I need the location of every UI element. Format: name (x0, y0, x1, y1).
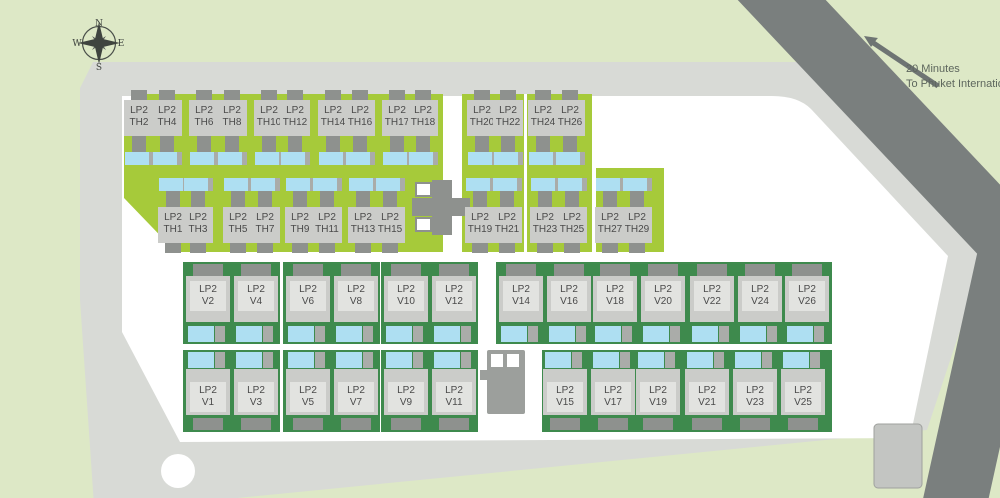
villa-v8[interactable]: LP2V8 (334, 264, 378, 344)
unit-project-prefix: LP2 (190, 284, 226, 296)
roof (415, 90, 431, 100)
parking-pad (874, 424, 922, 488)
townhouse-th6[interactable]: LP2TH6 (189, 90, 219, 168)
roof (341, 418, 371, 430)
pool-deck (461, 352, 471, 368)
unit-label-plate: LP2TH18 (408, 100, 438, 136)
unit-label-plate: LP2V10 (388, 281, 424, 311)
pool-icon (595, 326, 621, 342)
villa-v17[interactable]: LP2V17 (591, 352, 635, 432)
unit-number: V14 (503, 296, 539, 308)
unit-project-prefix: LP2 (345, 105, 375, 117)
townhouse-th27[interactable]: LP2TH27 (595, 178, 625, 256)
pool-icon (188, 326, 214, 342)
roof (600, 264, 630, 276)
unit-number: TH8 (217, 117, 247, 129)
roof (293, 418, 323, 430)
townhouse-th22[interactable]: LP2TH22 (493, 90, 523, 168)
villa-v26[interactable]: LP2V26 (785, 264, 829, 344)
unit-number: TH3 (183, 224, 213, 236)
unit-label-plate: LP2TH24 (528, 100, 558, 136)
unit-label-plate: LP2V1 (190, 382, 226, 412)
pool-deck (810, 352, 820, 368)
garage (262, 136, 276, 152)
unit-number: TH24 (528, 117, 558, 129)
pool-deck (215, 352, 225, 368)
villa-v23[interactable]: LP2V23 (733, 352, 777, 432)
roof (391, 264, 421, 276)
pool-icon (545, 352, 571, 368)
roof (352, 90, 368, 100)
roof (261, 90, 277, 100)
villa-v14[interactable]: LP2V14 (499, 264, 543, 344)
unit-project-prefix: LP2 (280, 105, 310, 117)
unit-label-plate: LP2V8 (338, 281, 374, 311)
roof (190, 243, 206, 253)
garage (390, 136, 404, 152)
roof (389, 90, 405, 100)
pool-deck (582, 178, 587, 191)
unit-project-prefix: LP2 (597, 284, 633, 296)
villa-v7[interactable]: LP2V7 (334, 352, 378, 432)
unit-project-prefix: LP2 (503, 284, 539, 296)
villa-v24[interactable]: LP2V24 (738, 264, 782, 344)
unit-label-plate: LP2TH5 (223, 207, 253, 243)
garage (293, 191, 307, 207)
unit-project-prefix: LP2 (622, 212, 652, 224)
unit-number: TH16 (345, 117, 375, 129)
garage (603, 191, 617, 207)
pool-deck (622, 326, 632, 342)
villa-v21[interactable]: LP2V21 (685, 352, 729, 432)
unit-number: V25 (785, 397, 821, 409)
townhouse-th13[interactable]: LP2TH13 (348, 178, 378, 256)
roof (165, 243, 181, 253)
roof (391, 418, 421, 430)
villa-v16[interactable]: LP2V16 (547, 264, 591, 344)
pool-icon (558, 178, 582, 191)
townhouse-th25[interactable]: LP2TH25 (557, 178, 587, 256)
unit-number: V2 (190, 296, 226, 308)
unit-number: V24 (742, 296, 778, 308)
unit-label-plate: LP2V16 (551, 281, 587, 311)
unit-project-prefix: LP2 (530, 212, 560, 224)
roof (439, 264, 469, 276)
roof (499, 243, 515, 253)
pool-deck (263, 352, 273, 368)
unit-project-prefix: LP2 (694, 284, 730, 296)
unit-label-plate: LP2V19 (640, 382, 676, 412)
pool-icon (251, 178, 275, 191)
compass-west-label: W (72, 39, 82, 49)
unit-label-plate: LP2V21 (689, 382, 725, 412)
travel-note-line2: To Phuket International (906, 77, 1000, 92)
garage (563, 136, 577, 152)
pool-icon (623, 178, 647, 191)
pool-deck (620, 352, 630, 368)
unit-number: V18 (597, 296, 633, 308)
townhouse-th15[interactable]: LP2TH15 (375, 178, 405, 256)
unit-number: V6 (290, 296, 326, 308)
roof (287, 90, 303, 100)
villa-v1[interactable]: LP2V1 (186, 352, 230, 432)
unit-project-prefix: LP2 (338, 385, 374, 397)
pool-icon (740, 326, 766, 342)
townhouse-th18[interactable]: LP2TH18 (408, 90, 438, 168)
airport-travel-note: 20 Minutes To Phuket International (906, 62, 1000, 92)
unit-number: TH13 (348, 224, 378, 236)
unit-project-prefix: LP2 (189, 105, 219, 117)
unit-project-prefix: LP2 (555, 105, 585, 117)
unit-project-prefix: LP2 (250, 212, 280, 224)
pool-deck (400, 178, 405, 191)
townhouse-th11[interactable]: LP2TH11 (312, 178, 342, 256)
unit-label-plate: LP2TH23 (530, 207, 560, 243)
villa-v12[interactable]: LP2V12 (432, 264, 476, 344)
pool-icon (638, 352, 664, 368)
roof (506, 264, 536, 276)
unit-label-plate: LP2V9 (388, 382, 424, 412)
unit-project-prefix: LP2 (595, 212, 625, 224)
villa-v3[interactable]: LP2V3 (234, 352, 278, 432)
garage (536, 136, 550, 152)
unit-number: V5 (290, 397, 326, 409)
pool-icon (224, 178, 248, 191)
garage (473, 191, 487, 207)
townhouse-th9[interactable]: LP2TH9 (285, 178, 315, 256)
garage (630, 191, 644, 207)
roof (224, 90, 240, 100)
roof (325, 90, 341, 100)
unit-project-prefix: LP2 (348, 212, 378, 224)
unit-number: V3 (238, 397, 274, 409)
pool-deck (413, 352, 423, 368)
unit-label-plate: LP2V15 (547, 382, 583, 412)
unit-number: V4 (238, 296, 274, 308)
unit-project-prefix: LP2 (290, 284, 326, 296)
unit-label-plate: LP2V12 (436, 281, 472, 311)
roof (602, 243, 618, 253)
villa-v2[interactable]: LP2V2 (186, 264, 230, 344)
roof (535, 90, 551, 100)
pool-icon (529, 152, 553, 165)
unit-label-plate: LP2V22 (694, 281, 730, 311)
pool-icon (383, 152, 407, 165)
pool-deck (413, 326, 423, 342)
unit-project-prefix: LP2 (640, 385, 676, 397)
pool-deck (647, 178, 652, 191)
townhouse-th4[interactable]: LP2TH4 (152, 90, 182, 168)
villa-v25[interactable]: LP2V25 (781, 352, 825, 432)
pool-icon (787, 326, 813, 342)
lane-divider (524, 94, 527, 252)
unit-number: V10 (388, 296, 424, 308)
villa-v4[interactable]: LP2V4 (234, 264, 278, 344)
unit-number: V19 (640, 397, 676, 409)
unit-label-plate: LP2TH8 (217, 100, 247, 136)
townhouse-th23[interactable]: LP2TH23 (530, 178, 560, 256)
pool-icon (434, 326, 460, 342)
unit-number: TH12 (280, 117, 310, 129)
townhouse-th12[interactable]: LP2TH12 (280, 90, 310, 168)
unit-project-prefix: LP2 (290, 385, 326, 397)
garage (225, 136, 239, 152)
unit-label-plate: LP2V5 (290, 382, 326, 412)
garage (258, 191, 272, 207)
pool-icon (313, 178, 337, 191)
pool-icon (188, 352, 214, 368)
unit-number: TH15 (375, 224, 405, 236)
unit-label-plate: LP2TH7 (250, 207, 280, 243)
unit-project-prefix: LP2 (436, 385, 472, 397)
pool-icon (159, 178, 183, 191)
unit-project-prefix: LP2 (789, 284, 825, 296)
villa-v5[interactable]: LP2V5 (286, 352, 330, 432)
pool-deck (263, 326, 273, 342)
unit-label-plate: LP2V6 (290, 281, 326, 311)
garage (166, 191, 180, 207)
unit-project-prefix: LP2 (436, 284, 472, 296)
unit-number: TH21 (492, 224, 522, 236)
pool-deck (242, 152, 247, 165)
unit-project-prefix: LP2 (465, 212, 495, 224)
pool-icon (236, 326, 262, 342)
unit-label-plate: LP2TH15 (375, 207, 405, 243)
villa-v19[interactable]: LP2V19 (636, 352, 680, 432)
roof (472, 243, 488, 253)
pool-icon (288, 352, 314, 368)
unit-number: TH14 (318, 117, 348, 129)
pool-icon (643, 326, 669, 342)
garage (231, 191, 245, 207)
unit-project-prefix: LP2 (408, 105, 438, 117)
pool-icon (386, 326, 412, 342)
garage (500, 191, 514, 207)
pool-deck (337, 178, 342, 191)
unit-project-prefix: LP2 (124, 105, 154, 117)
townhouse-th21[interactable]: LP2TH21 (492, 178, 522, 256)
pool-icon (125, 152, 149, 165)
unit-label-plate: LP2V26 (789, 281, 825, 311)
unit-number: V11 (436, 397, 472, 409)
unit-label-plate: LP2TH29 (622, 207, 652, 243)
unit-number: TH4 (152, 117, 182, 129)
pool-deck (762, 352, 772, 368)
unit-project-prefix: LP2 (338, 284, 374, 296)
roof (740, 418, 770, 430)
unit-label-plate: LP2V18 (597, 281, 633, 311)
roof (564, 243, 580, 253)
unit-number: TH5 (223, 224, 253, 236)
compass-south-label: S (96, 63, 102, 73)
pool-deck (767, 326, 777, 342)
pool-icon (434, 352, 460, 368)
unit-label-plate: LP2TH26 (555, 100, 585, 136)
unit-label-plate: LP2TH25 (557, 207, 587, 243)
garage (197, 136, 211, 152)
villa-v11[interactable]: LP2V11 (432, 352, 476, 432)
unit-project-prefix: LP2 (190, 385, 226, 397)
pool-deck (576, 326, 586, 342)
unit-number: TH18 (408, 117, 438, 129)
roof (550, 418, 580, 430)
unit-number: TH7 (250, 224, 280, 236)
compass-east-label: E (118, 39, 125, 49)
unit-project-prefix: LP2 (183, 212, 213, 224)
unit-project-prefix: LP2 (152, 105, 182, 117)
pool-icon (346, 152, 370, 165)
unit-project-prefix: LP2 (388, 385, 424, 397)
pool-icon (349, 178, 373, 191)
unit-number: TH27 (595, 224, 625, 236)
pool-icon (281, 152, 305, 165)
garage (353, 136, 367, 152)
garage (565, 191, 579, 207)
townhouse-th26[interactable]: LP2TH26 (555, 90, 585, 168)
unit-number: TH29 (622, 224, 652, 236)
unit-project-prefix: LP2 (645, 284, 681, 296)
pool-icon (556, 152, 580, 165)
pool-icon (190, 152, 214, 165)
townhouse-th5[interactable]: LP2TH5 (223, 178, 253, 256)
unit-label-plate: LP2TH13 (348, 207, 378, 243)
roof (500, 90, 516, 100)
pool-icon (593, 352, 619, 368)
unit-project-prefix: LP2 (547, 385, 583, 397)
pool-deck (518, 152, 523, 165)
unit-label-plate: LP2TH12 (280, 100, 310, 136)
roof (697, 264, 727, 276)
unit-number: TH11 (312, 224, 342, 236)
unit-label-plate: LP2TH19 (465, 207, 495, 243)
unit-label-plate: LP2V17 (595, 382, 631, 412)
townhouse-th7[interactable]: LP2TH7 (250, 178, 280, 256)
unit-project-prefix: LP2 (785, 385, 821, 397)
villa-v20[interactable]: LP2V20 (641, 264, 685, 344)
pool-deck (814, 326, 824, 342)
pool-icon (386, 352, 412, 368)
townhouse-th3[interactable]: LP2TH3 (183, 178, 213, 256)
unit-project-prefix: LP2 (388, 284, 424, 296)
unit-number: V16 (551, 296, 587, 308)
pool-icon (376, 178, 400, 191)
unit-number: TH26 (555, 117, 585, 129)
pool-icon (255, 152, 279, 165)
roof (159, 90, 175, 100)
roundabout (161, 454, 195, 488)
villa-v22[interactable]: LP2V22 (690, 264, 734, 344)
villa-v15[interactable]: LP2V15 (543, 352, 587, 432)
townhouse-th19[interactable]: LP2TH19 (465, 178, 495, 256)
unit-number: TH2 (124, 117, 154, 129)
pool-deck (528, 326, 538, 342)
pool-deck (665, 352, 675, 368)
unit-project-prefix: LP2 (223, 212, 253, 224)
pool-icon (319, 152, 343, 165)
townhouse-th16[interactable]: LP2TH16 (345, 90, 375, 168)
unit-project-prefix: LP2 (551, 284, 587, 296)
pool-deck (208, 178, 213, 191)
pool-deck (714, 352, 724, 368)
unit-project-prefix: LP2 (595, 385, 631, 397)
pool-icon (409, 152, 433, 165)
roof (692, 418, 722, 430)
townhouse-th14[interactable]: LP2TH14 (318, 90, 348, 168)
pool-icon (692, 326, 718, 342)
unit-number: V20 (645, 296, 681, 308)
unit-project-prefix: LP2 (528, 105, 558, 117)
compass-north-label: N (95, 19, 103, 29)
unit-number: V21 (689, 397, 725, 409)
roof (257, 243, 273, 253)
unit-label-plate: LP2TH6 (189, 100, 219, 136)
roof (643, 418, 673, 430)
townhouse-th2[interactable]: LP2TH2 (124, 90, 154, 168)
villa-v9[interactable]: LP2V9 (384, 352, 428, 432)
pool-icon (466, 178, 490, 191)
pool-icon (286, 178, 310, 191)
unit-number: TH9 (285, 224, 315, 236)
roof (382, 243, 398, 253)
garage (416, 136, 430, 152)
unit-number: V8 (338, 296, 374, 308)
villa-v10[interactable]: LP2V10 (384, 264, 428, 344)
unit-project-prefix: LP2 (742, 284, 778, 296)
unit-label-plate: LP2V11 (436, 382, 472, 412)
townhouse-th8[interactable]: LP2TH8 (217, 90, 247, 168)
roof (629, 243, 645, 253)
unit-number: V9 (388, 397, 424, 409)
roof (193, 264, 223, 276)
villa-v6[interactable]: LP2V6 (286, 264, 330, 344)
unit-number: V7 (338, 397, 374, 409)
pool-icon (549, 326, 575, 342)
master-plan-map: N E S W 20 Minutes To Phuket Internation… (0, 0, 1000, 498)
unit-label-plate: LP2TH16 (345, 100, 375, 136)
pool-deck (315, 326, 325, 342)
unit-number: TH23 (530, 224, 560, 236)
unit-project-prefix: LP2 (285, 212, 315, 224)
townhouse-th29[interactable]: LP2TH29 (622, 178, 652, 256)
pool-icon (494, 152, 518, 165)
garage (538, 191, 552, 207)
unit-project-prefix: LP2 (217, 105, 247, 117)
unit-label-plate: LP2TH2 (124, 100, 154, 136)
pool-deck (580, 152, 585, 165)
garage (475, 136, 489, 152)
pool-icon (783, 352, 809, 368)
unit-label-plate: LP2V2 (190, 281, 226, 311)
roof (474, 90, 490, 100)
unit-label-plate: LP2TH22 (493, 100, 523, 136)
roof (241, 264, 271, 276)
unit-label-plate: LP2TH27 (595, 207, 625, 243)
roof (537, 243, 553, 253)
pool-icon (493, 178, 517, 191)
townhouse-th24[interactable]: LP2TH24 (528, 90, 558, 168)
unit-label-plate: LP2TH21 (492, 207, 522, 243)
unit-project-prefix: LP2 (375, 212, 405, 224)
villa-v18[interactable]: LP2V18 (593, 264, 637, 344)
roof (439, 418, 469, 430)
roof (292, 243, 308, 253)
pool-icon (288, 326, 314, 342)
pool-icon (687, 352, 713, 368)
unit-label-plate: LP2TH4 (152, 100, 182, 136)
roof (293, 264, 323, 276)
pool-icon (468, 152, 492, 165)
roof (554, 264, 584, 276)
